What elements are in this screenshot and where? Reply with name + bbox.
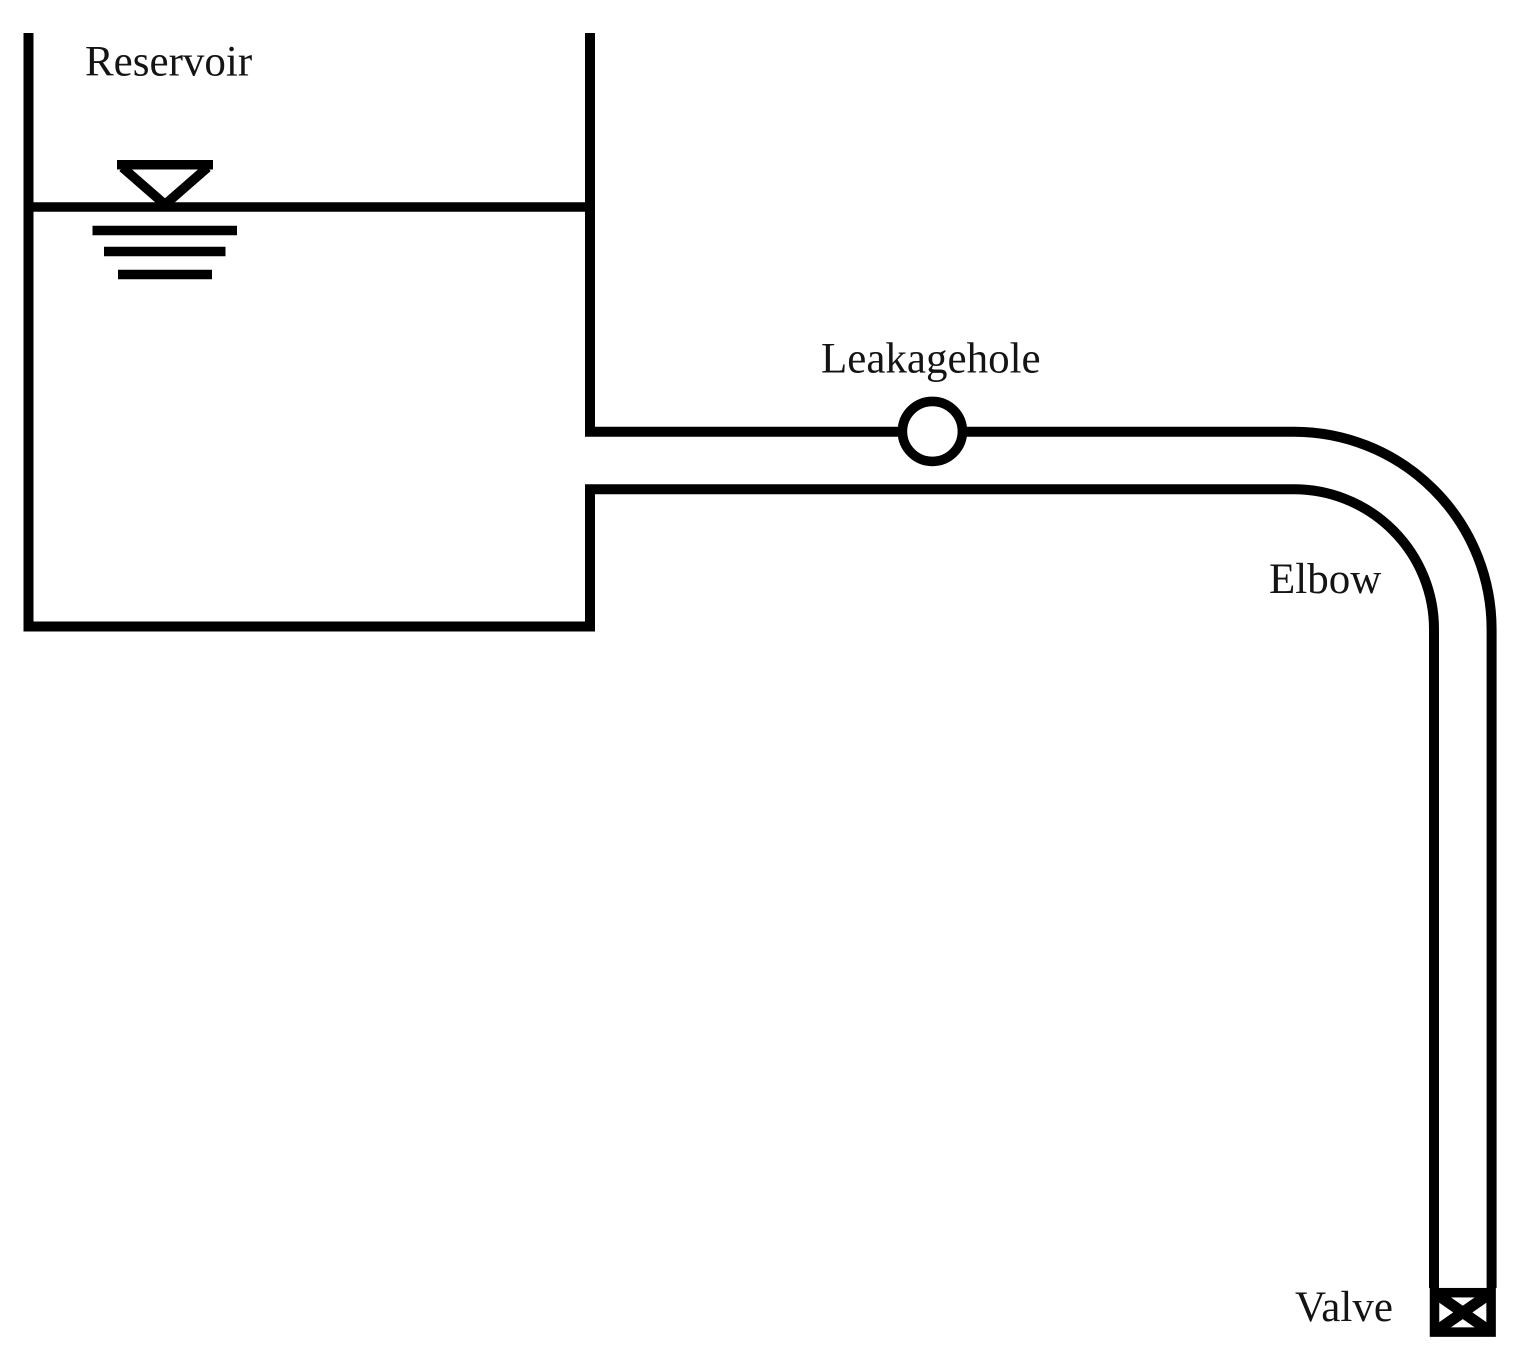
svg-text:Reservoir: Reservoir xyxy=(85,39,252,86)
svg-text:Valve: Valve xyxy=(1295,1284,1393,1331)
svg-text:Elbow: Elbow xyxy=(1269,556,1381,603)
svg-text:Leakagehole: Leakagehole xyxy=(821,336,1041,383)
